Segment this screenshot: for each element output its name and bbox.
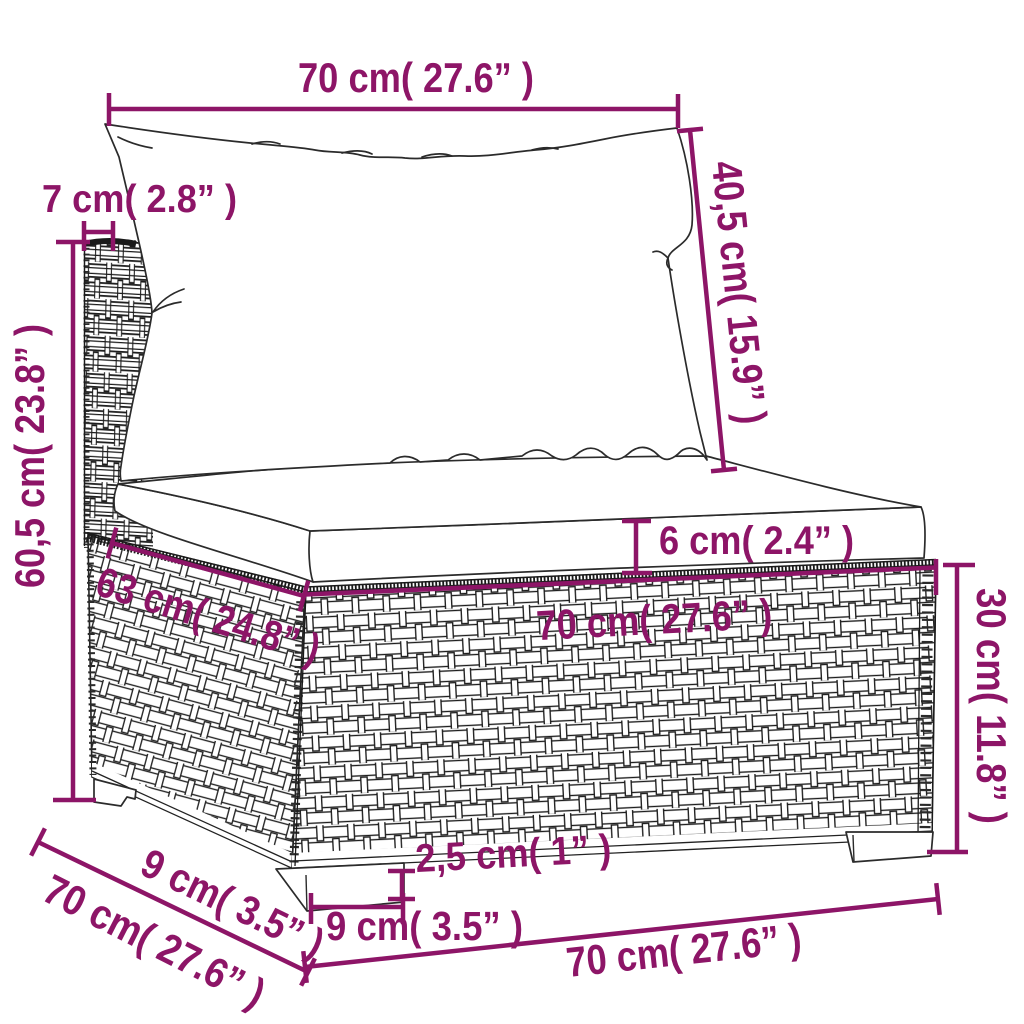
svg-text:30 cm( 11.8” ): 30 cm( 11.8” ) <box>968 588 1015 824</box>
svg-text:6 cm( 2.4” ): 6 cm( 2.4” ) <box>659 519 854 563</box>
svg-text:7 cm( 2.8” ): 7 cm( 2.8” ) <box>42 178 237 221</box>
svg-text:9 cm( 3.5” ): 9 cm( 3.5” ) <box>326 903 523 949</box>
svg-text:70 cm( 27.6” ): 70 cm( 27.6” ) <box>298 54 534 101</box>
svg-text:60,5 cm( 23.8” ): 60,5 cm( 23.8” ) <box>6 324 53 588</box>
